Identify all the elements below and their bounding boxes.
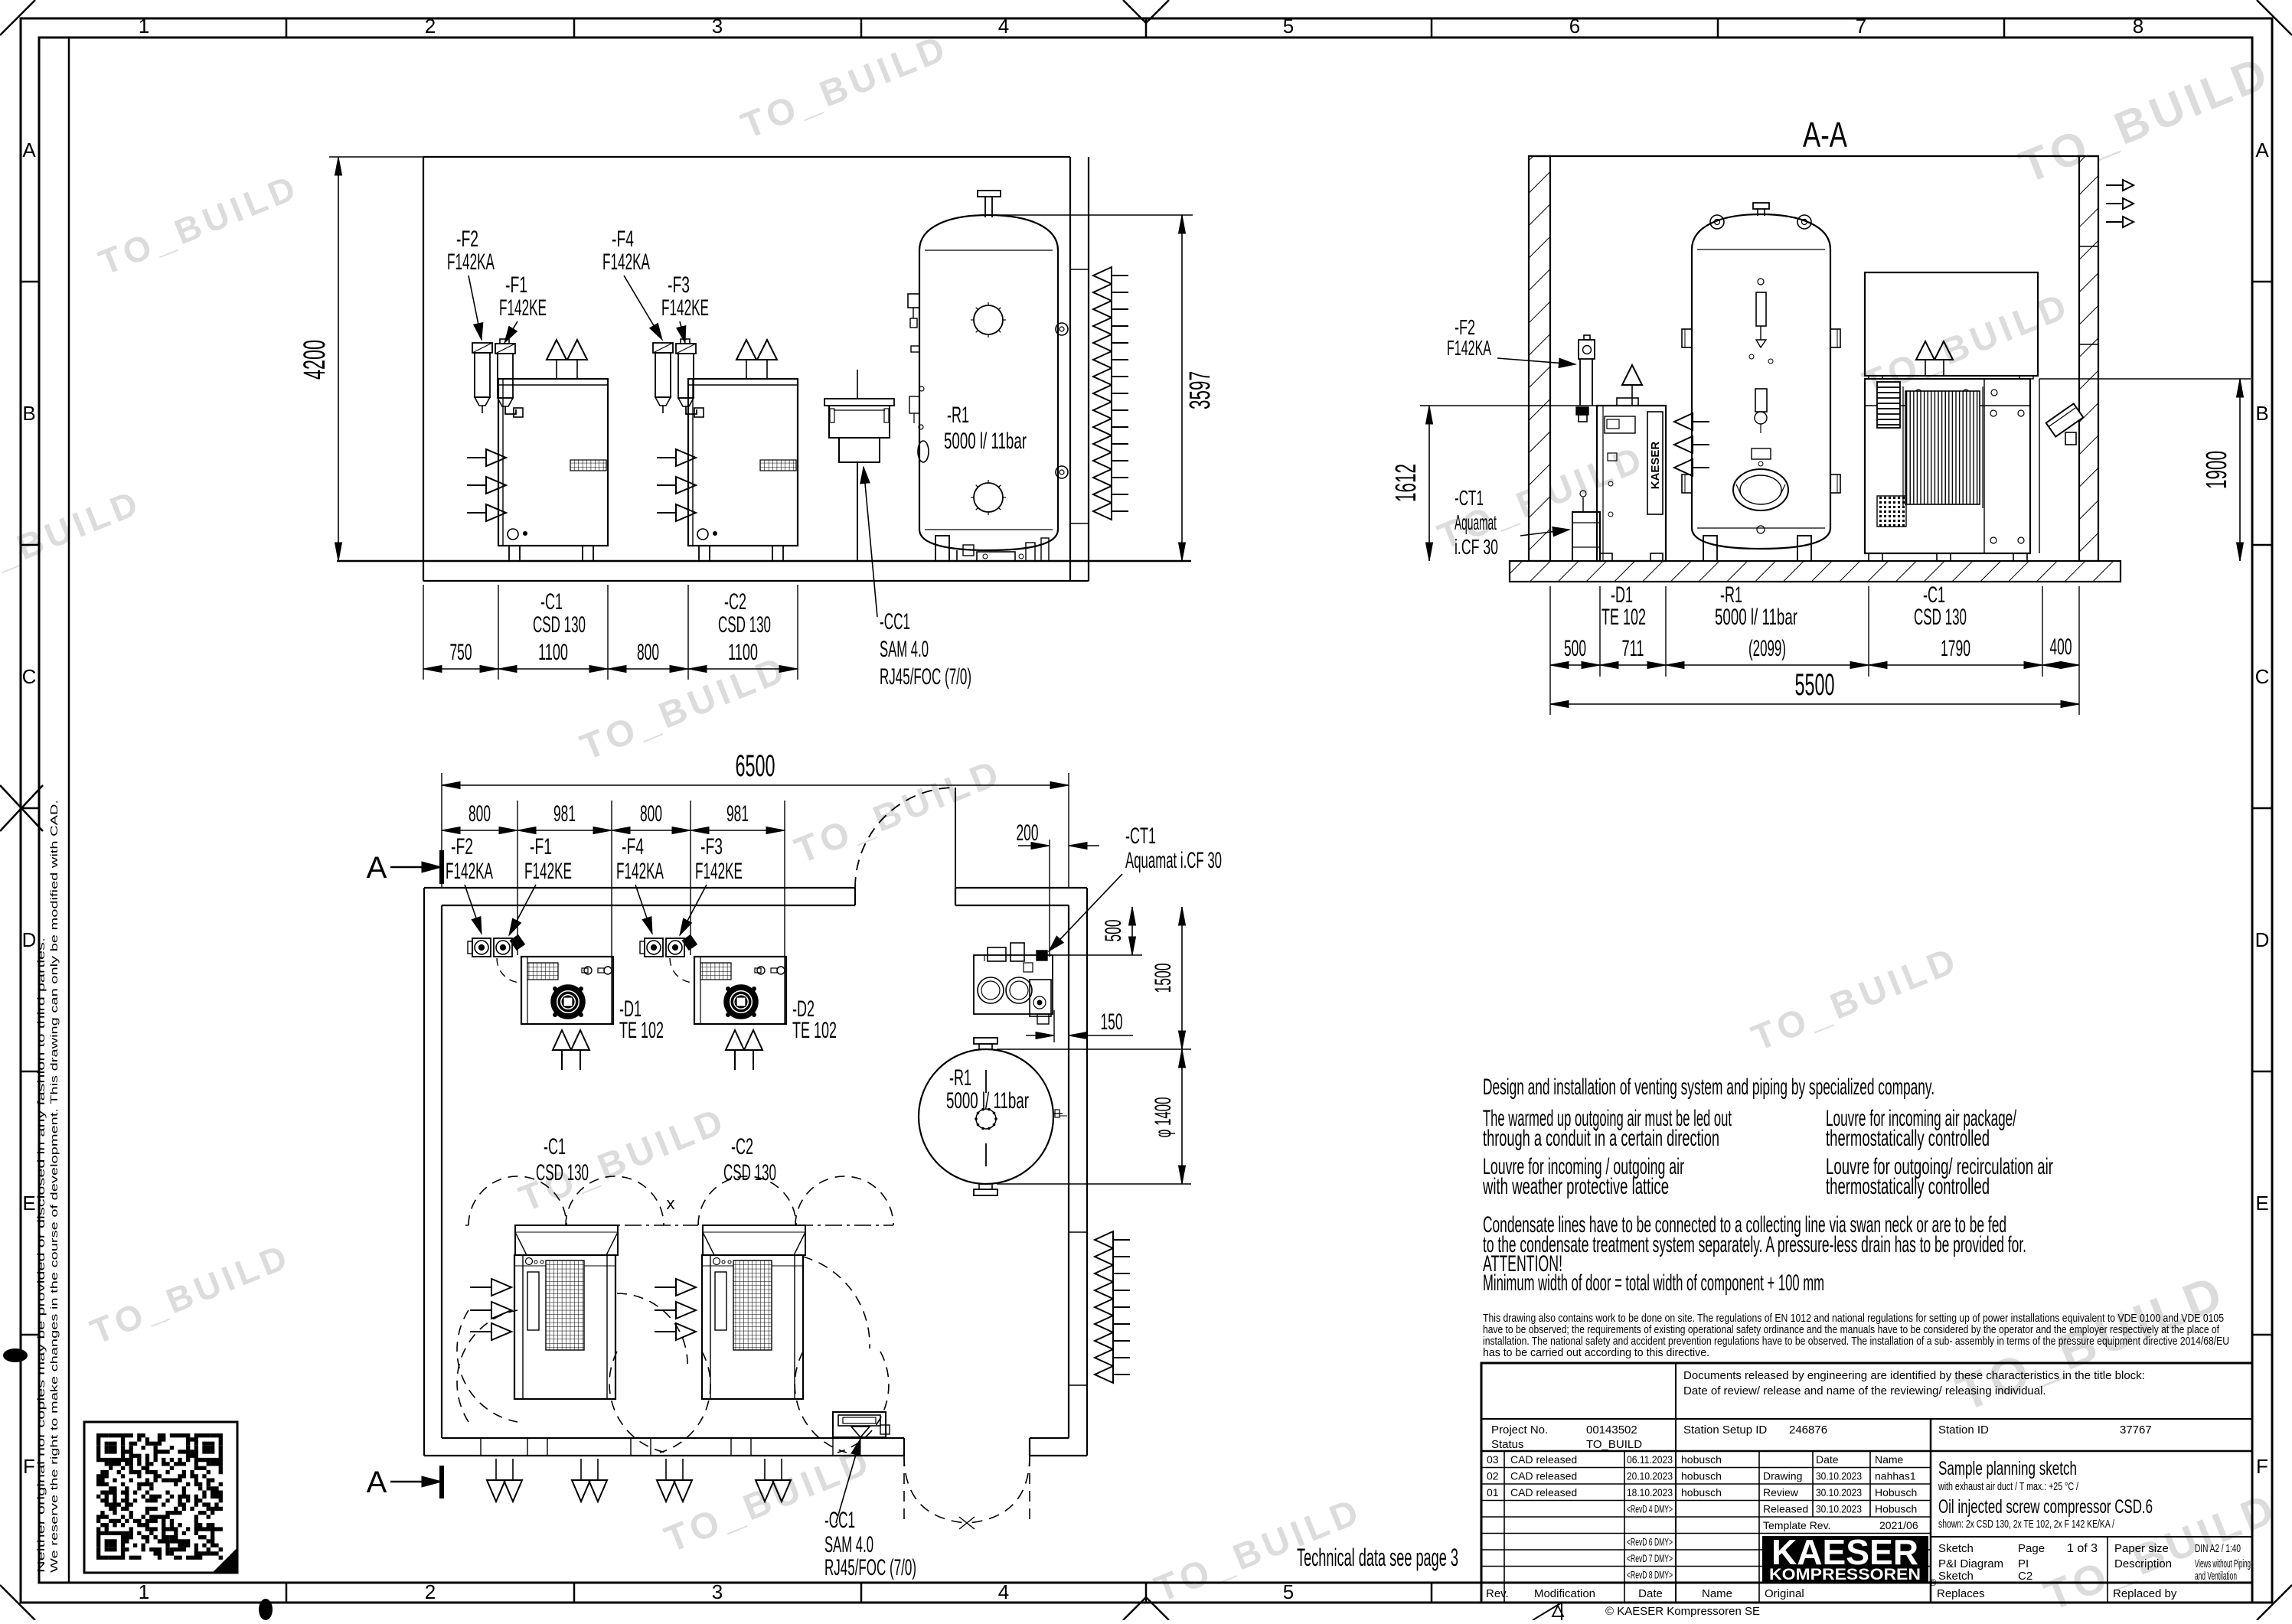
svg-text:C2: C2 bbox=[2018, 1570, 2032, 1583]
svg-text:F142KA: F142KA bbox=[616, 859, 664, 884]
svg-text:150: 150 bbox=[1101, 1009, 1123, 1035]
svg-text:F142KA: F142KA bbox=[446, 859, 493, 884]
svg-text:-R1: -R1 bbox=[949, 1065, 971, 1091]
svg-text:-CC1: -CC1 bbox=[880, 609, 910, 634]
svg-text:CSD 130: CSD 130 bbox=[533, 612, 586, 638]
svg-text:CSD 130: CSD 130 bbox=[718, 612, 771, 638]
svg-text:®: ® bbox=[1929, 1577, 1937, 1588]
svg-text:RJ45/FOC (7/0): RJ45/FOC (7/0) bbox=[880, 664, 971, 690]
svg-text:<RevD 8 DMY>: <RevD 8 DMY> bbox=[1627, 1569, 1673, 1581]
svg-text:01: 01 bbox=[1487, 1486, 1499, 1498]
svg-text:KAESER: KAESER bbox=[1649, 442, 1662, 490]
svg-text:A: A bbox=[367, 851, 387, 885]
svg-text:Name: Name bbox=[1875, 1453, 1904, 1466]
svg-text:30.10.2023: 30.10.2023 bbox=[1816, 1503, 1862, 1515]
svg-text:x: x bbox=[667, 1194, 675, 1213]
svg-text:1: 1 bbox=[139, 1580, 149, 1603]
svg-text:Documents released by engineer: Documents released by engineering are id… bbox=[1683, 1369, 2145, 1382]
svg-text:500: 500 bbox=[1101, 920, 1126, 942]
svg-text:TE 102: TE 102 bbox=[792, 1018, 837, 1043]
svg-text:thermostatically controlled: thermostatically controlled bbox=[1826, 1174, 1990, 1199]
svg-text:Replaces: Replaces bbox=[1937, 1587, 1985, 1600]
svg-text:Drawing: Drawing bbox=[1763, 1470, 1802, 1482]
svg-text:has to be carried out accordin: has to be carried out according to this … bbox=[1483, 1347, 1709, 1359]
svg-text:nahhas1: nahhas1 bbox=[1875, 1470, 1916, 1482]
svg-text:thermostatically controlled: thermostatically controlled bbox=[1826, 1126, 1990, 1151]
svg-text:TE 102: TE 102 bbox=[1601, 605, 1646, 630]
svg-text:2: 2 bbox=[425, 15, 436, 38]
svg-text:1 of 3: 1 of 3 bbox=[2067, 1542, 2098, 1555]
svg-text:Released: Released bbox=[1763, 1503, 1808, 1515]
svg-text:00143502: 00143502 bbox=[1586, 1423, 1637, 1436]
svg-text:CSD 130: CSD 130 bbox=[723, 1160, 776, 1185]
svg-text:750: 750 bbox=[450, 640, 472, 665]
svg-text:-CT1: -CT1 bbox=[1125, 823, 1156, 849]
svg-text:A: A bbox=[22, 139, 36, 161]
svg-text:F142KE: F142KE bbox=[499, 295, 547, 321]
svg-text:Date: Date bbox=[1638, 1587, 1663, 1600]
svg-text:-F2: -F2 bbox=[456, 227, 478, 252]
svg-text:through a conduit in a certain: through a conduit in a certain direction bbox=[1483, 1126, 1719, 1151]
svg-text:1100: 1100 bbox=[728, 640, 758, 665]
svg-text:Station Setup ID: Station Setup ID bbox=[1683, 1423, 1767, 1436]
svg-text:5000 l/ 11bar: 5000 l/ 11bar bbox=[1715, 605, 1797, 630]
svg-text:500: 500 bbox=[1564, 636, 1586, 661]
svg-text:200: 200 bbox=[1017, 820, 1039, 846]
svg-text:3: 3 bbox=[712, 1580, 723, 1603]
svg-text:(2099): (2099) bbox=[1748, 636, 1786, 661]
svg-text:F142KE: F142KE bbox=[695, 859, 743, 884]
svg-text:F142KE: F142KE bbox=[524, 859, 572, 884]
svg-text:F142KA: F142KA bbox=[447, 249, 495, 275]
svg-text:F142KA: F142KA bbox=[602, 249, 650, 275]
svg-text:Design and installation of ven: Design and installation of venting syste… bbox=[1483, 1075, 1934, 1100]
svg-text:D: D bbox=[22, 928, 37, 951]
svg-text:-F4: -F4 bbox=[622, 834, 644, 859]
svg-text:2021/06: 2021/06 bbox=[1879, 1519, 1918, 1531]
svg-text:Review: Review bbox=[1763, 1486, 1799, 1498]
svg-text:Date: Date bbox=[1816, 1453, 1839, 1466]
svg-text:φ 1400: φ 1400 bbox=[1151, 1097, 1176, 1138]
svg-text:Project No.: Project No. bbox=[1491, 1423, 1548, 1436]
svg-text:-R1: -R1 bbox=[947, 403, 969, 428]
svg-text:-F4: -F4 bbox=[612, 227, 634, 252]
svg-text:with weather protective lattic: with weather protective lattice bbox=[1482, 1174, 1669, 1199]
svg-text:Original: Original bbox=[1765, 1587, 1804, 1600]
svg-text:800: 800 bbox=[469, 801, 491, 827]
svg-text:800: 800 bbox=[640, 801, 662, 827]
svg-text:to the condensate treatment sy: to the condensate treatment system separ… bbox=[1483, 1232, 2026, 1257]
svg-text:have to be observed; the requi: have to be observed; the requirements of… bbox=[1483, 1324, 2220, 1336]
svg-text:<RevD 4 DMY>: <RevD 4 DMY> bbox=[1627, 1503, 1673, 1515]
svg-text:TE 102: TE 102 bbox=[619, 1018, 664, 1043]
svg-text:5: 5 bbox=[1283, 1580, 1294, 1603]
svg-text:711: 711 bbox=[1622, 636, 1644, 661]
svg-text:400: 400 bbox=[2050, 634, 2072, 660]
svg-text:20.10.2023: 20.10.2023 bbox=[1627, 1470, 1673, 1482]
svg-text:Views without Piping: Views without Piping bbox=[2195, 1557, 2251, 1570]
svg-text:Date of review/ release and na: Date of review/ release and name of the … bbox=[1683, 1384, 2046, 1397]
svg-text:-CC1: -CC1 bbox=[824, 1508, 855, 1533]
svg-text:C: C bbox=[2255, 665, 2270, 688]
svg-text:F142KE: F142KE bbox=[661, 295, 709, 321]
svg-text:Neither original nor copies ma: Neither original nor copies may be provi… bbox=[35, 938, 47, 1573]
svg-text:-C2: -C2 bbox=[731, 1134, 753, 1159]
svg-text:i.CF 30: i.CF 30 bbox=[1455, 535, 1498, 559]
svg-text:and Ventilation: and Ventilation bbox=[2195, 1570, 2237, 1583]
svg-text:PI: PI bbox=[2018, 1557, 2029, 1570]
svg-text:A: A bbox=[2255, 139, 2269, 161]
svg-text:shown: 2x CSD 130, 2x TE 102,: shown: 2x CSD 130, 2x TE 102, 2x F 142 K… bbox=[1938, 1518, 2115, 1531]
svg-text:hobusch: hobusch bbox=[1681, 1453, 1722, 1466]
svg-text:with exhaust air duct / T max: with exhaust air duct / T max.: +25 °C / bbox=[1938, 1480, 2078, 1493]
svg-text:03: 03 bbox=[1487, 1453, 1499, 1466]
svg-text:-C1: -C1 bbox=[540, 589, 563, 615]
svg-text:5000 l/ 11bar: 5000 l/ 11bar bbox=[946, 1088, 1029, 1114]
svg-text:06.11.2023: 06.11.2023 bbox=[1627, 1453, 1673, 1466]
svg-text:CSD 130: CSD 130 bbox=[1914, 605, 1967, 630]
svg-text:Aquamat: Aquamat bbox=[1455, 510, 1497, 534]
svg-text:Aquamat i.CF 30: Aquamat i.CF 30 bbox=[1125, 848, 1222, 873]
svg-text:30.10.2023: 30.10.2023 bbox=[1816, 1486, 1862, 1498]
svg-text:Hobusch: Hobusch bbox=[1875, 1486, 1917, 1498]
svg-text:5000 l/ 11bar: 5000 l/ 11bar bbox=[944, 429, 1027, 454]
svg-text:800: 800 bbox=[637, 640, 659, 665]
svg-text:Sample planning sketch: Sample planning sketch bbox=[1938, 1458, 2077, 1479]
svg-text:1: 1 bbox=[139, 15, 149, 38]
svg-text:2: 2 bbox=[425, 1580, 436, 1603]
svg-text:F: F bbox=[23, 1455, 35, 1478]
svg-text:Minimum width of door = total: Minimum width of door = total width of c… bbox=[1483, 1270, 1824, 1296]
svg-text:Station ID: Station ID bbox=[1938, 1423, 1989, 1436]
svg-text:A: A bbox=[367, 1466, 387, 1499]
svg-text:Technical data see page 3: Technical data see page 3 bbox=[1297, 1544, 1458, 1571]
svg-text:-C2: -C2 bbox=[724, 589, 746, 615]
svg-text:-CT1: -CT1 bbox=[1455, 486, 1484, 510]
svg-text:B: B bbox=[22, 402, 35, 425]
svg-text:CAD released: CAD released bbox=[1510, 1453, 1577, 1466]
svg-text:Description: Description bbox=[2114, 1557, 2172, 1570]
svg-text:installation. The national saf: installation. The national safety and ac… bbox=[1483, 1335, 2229, 1348]
svg-text:Hobusch: Hobusch bbox=[1875, 1503, 1917, 1515]
svg-text:hobusch: hobusch bbox=[1681, 1470, 1722, 1482]
svg-text:4: 4 bbox=[998, 15, 1009, 38]
svg-text:Oil injected screw compressor: Oil injected screw compressor CSD.6 bbox=[1938, 1496, 2153, 1518]
svg-text:981: 981 bbox=[726, 801, 749, 827]
svg-text:1612: 1612 bbox=[1390, 464, 1422, 502]
svg-text:30.10.2023: 30.10.2023 bbox=[1816, 1470, 1862, 1482]
svg-text:P&I Diagram: P&I Diagram bbox=[1938, 1557, 2003, 1570]
svg-text:D: D bbox=[2255, 928, 2270, 951]
svg-text:4200: 4200 bbox=[298, 340, 331, 380]
svg-text:KOMPRESSOREN: KOMPRESSOREN bbox=[1769, 1566, 1921, 1583]
svg-text:This drawing also contains wor: This drawing also contains work to be do… bbox=[1483, 1313, 2224, 1325]
svg-text:1900: 1900 bbox=[2201, 451, 2233, 489]
svg-text:F: F bbox=[2256, 1455, 2268, 1478]
svg-text:-F1: -F1 bbox=[505, 272, 527, 298]
svg-text:7: 7 bbox=[1856, 15, 1866, 38]
svg-text:18.10.2023: 18.10.2023 bbox=[1627, 1486, 1673, 1498]
svg-text:1100: 1100 bbox=[538, 640, 568, 665]
svg-text:1790: 1790 bbox=[1941, 636, 1970, 661]
svg-text:SAM 4.0: SAM 4.0 bbox=[880, 637, 929, 662]
svg-text:-C1: -C1 bbox=[544, 1134, 566, 1159]
svg-text:E: E bbox=[22, 1192, 35, 1215]
svg-text:37767: 37767 bbox=[2120, 1423, 2152, 1436]
svg-text:02: 02 bbox=[1487, 1470, 1499, 1482]
svg-text:5: 5 bbox=[1283, 15, 1294, 38]
svg-text:<RevD 7 DMY>: <RevD 7 DMY> bbox=[1627, 1552, 1673, 1564]
svg-text:B: B bbox=[2255, 402, 2268, 425]
svg-text:Modification: Modification bbox=[1534, 1587, 1595, 1600]
svg-text:246876: 246876 bbox=[1789, 1423, 1827, 1436]
svg-text:We reserve the right to make c: We reserve the right to make changes in … bbox=[48, 800, 60, 1573]
svg-text:Sketch: Sketch bbox=[1938, 1570, 1974, 1583]
svg-text:1500: 1500 bbox=[1151, 964, 1176, 993]
svg-text:3597: 3597 bbox=[1184, 371, 1216, 409]
svg-text:3: 3 bbox=[712, 15, 723, 38]
svg-text:CAD released: CAD released bbox=[1510, 1470, 1577, 1482]
svg-text:-F2: -F2 bbox=[451, 834, 473, 859]
svg-text:Template Rev.: Template Rev. bbox=[1763, 1519, 1830, 1531]
svg-text:SAM 4.0: SAM 4.0 bbox=[824, 1532, 873, 1557]
svg-text:6500: 6500 bbox=[736, 749, 775, 783]
svg-text:CAD released: CAD released bbox=[1510, 1486, 1577, 1498]
svg-text:Name: Name bbox=[1702, 1587, 1732, 1600]
svg-text:C: C bbox=[22, 665, 37, 688]
svg-text:CSD 130: CSD 130 bbox=[536, 1160, 589, 1185]
svg-text:E: E bbox=[2255, 1192, 2268, 1215]
svg-text:TO_BUILD: TO_BUILD bbox=[1586, 1438, 1642, 1451]
svg-text:-F3: -F3 bbox=[700, 834, 723, 859]
svg-text:<RevD 6 DMY>: <RevD 6 DMY> bbox=[1627, 1536, 1673, 1548]
svg-text:A-A: A-A bbox=[1803, 115, 1847, 155]
svg-text:F142KA: F142KA bbox=[1447, 336, 1491, 360]
svg-text:hobusch: hobusch bbox=[1681, 1486, 1722, 1498]
svg-text:-F3: -F3 bbox=[668, 272, 690, 298]
svg-text:6: 6 bbox=[1569, 15, 1580, 38]
svg-text:5500: 5500 bbox=[1795, 668, 1835, 702]
svg-text:Replaced by: Replaced by bbox=[2113, 1587, 2177, 1600]
svg-text:DIN A2 / 1:40: DIN A2 / 1:40 bbox=[2195, 1542, 2241, 1555]
svg-text:RJ45/FOC (7/0): RJ45/FOC (7/0) bbox=[824, 1555, 916, 1580]
svg-text:Page: Page bbox=[2018, 1542, 2045, 1555]
svg-text:© KAESER Kompressoren SE: © KAESER Kompressoren SE bbox=[1605, 1605, 1760, 1618]
svg-text:Status: Status bbox=[1491, 1438, 1524, 1451]
svg-text:Sketch: Sketch bbox=[1938, 1542, 1974, 1555]
svg-text:Rev.: Rev. bbox=[1486, 1587, 1509, 1600]
svg-text:Paper size: Paper size bbox=[2114, 1542, 2169, 1555]
svg-text:4: 4 bbox=[998, 1580, 1009, 1603]
svg-text:-F1: -F1 bbox=[530, 834, 552, 859]
svg-text:981: 981 bbox=[553, 801, 576, 827]
svg-text:8: 8 bbox=[2133, 15, 2143, 38]
